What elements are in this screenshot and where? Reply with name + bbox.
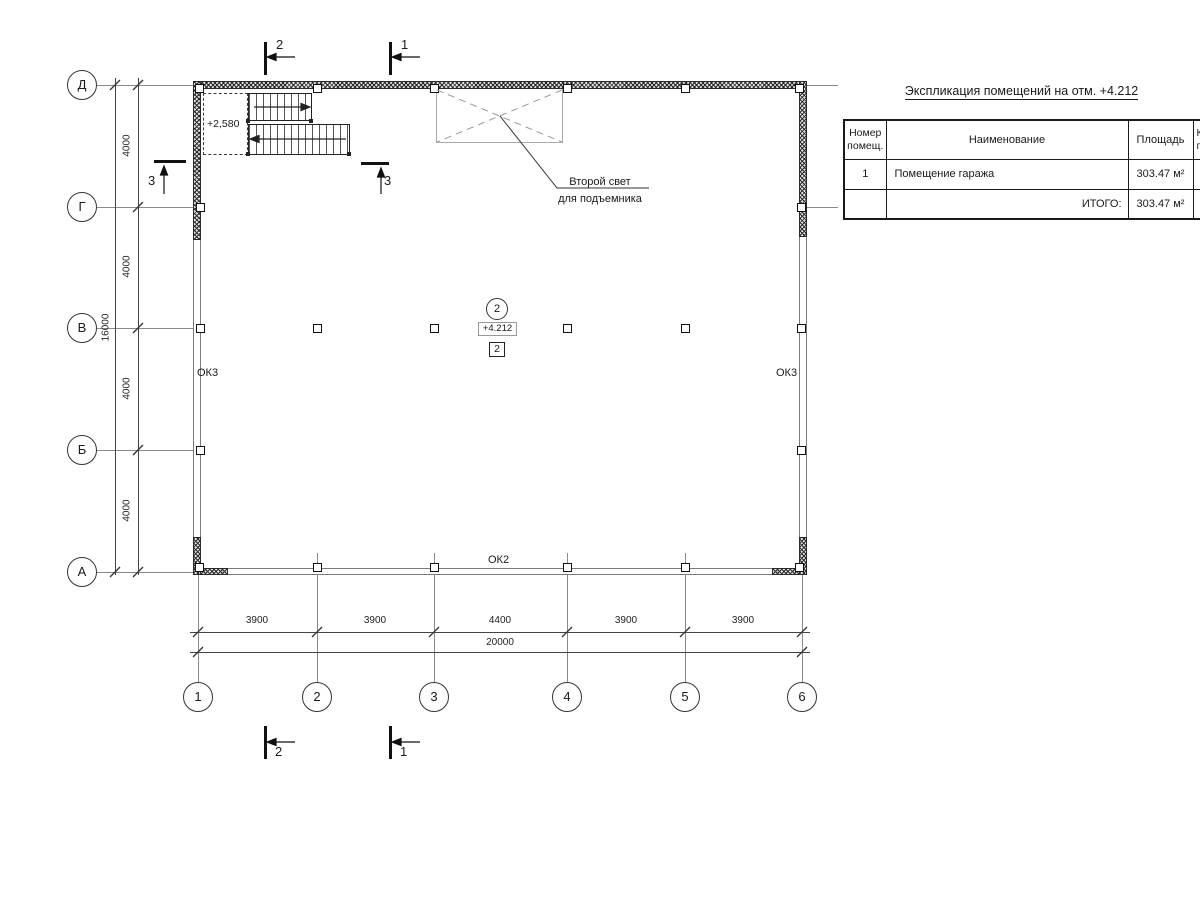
void-note-line2: для подъемника [546, 193, 654, 205]
dim-label: 4000 [122, 364, 133, 414]
floor-plan-sheet: +2,580 Д Г В Б А 1 2 3 4 5 6 4000 4000 4… [0, 0, 1200, 900]
dim-label: 3900 [227, 615, 287, 626]
schedule-header-area: Площадь [1128, 120, 1193, 159]
grid-bubble-col-6: 6 [787, 682, 817, 712]
dim-line-bottom-inner [190, 632, 810, 633]
grid-bubble-row-a: А [67, 557, 97, 587]
grid-bubble-col-2: 2 [302, 682, 332, 712]
schedule-title: Экспликация помещений на отм. +4.212 [843, 84, 1200, 98]
total-label: ИТОГО: [886, 189, 1128, 219]
dim-total-label: 16000 [101, 303, 112, 353]
wall-pilaster [313, 84, 322, 93]
section-label: 2 [275, 744, 282, 759]
stair-newel-dot [246, 119, 250, 123]
dim-total-label: 20000 [470, 637, 530, 648]
schedule-header-name: Наименование [886, 120, 1128, 159]
dim-label: 4000 [122, 242, 133, 292]
grid-stub-right-d [807, 85, 838, 86]
grid-line-row-b [97, 450, 200, 451]
window-tag-left: ОК3 [197, 367, 218, 379]
dim-line-vertical-inner [138, 78, 139, 575]
wall-pilaster [196, 324, 205, 333]
section-label: 3 [148, 173, 155, 188]
window-band-bottom [200, 568, 800, 575]
section-label: 2 [276, 37, 283, 52]
total-empty-cell [844, 189, 886, 219]
grid-bubble-col-5: 5 [670, 682, 700, 712]
wall-pilaster [195, 84, 204, 93]
schedule-row: 1 Помещение гаража 303.47 м² [844, 159, 1200, 189]
section-mark-3-left [154, 160, 186, 163]
wall-pilaster [681, 84, 690, 93]
section-mark-1-bottom [389, 726, 392, 759]
window-tag-bottom: ОК2 [488, 554, 509, 566]
section-mark-2-bottom [264, 726, 267, 759]
dim-label: 4000 [122, 486, 133, 536]
wall-pilaster [563, 84, 572, 93]
column-marker [681, 324, 690, 333]
wall-left-upper [193, 81, 201, 240]
dim-label: 4400 [470, 615, 530, 626]
wall-pilaster [195, 563, 204, 572]
position-bubble: 2 [486, 298, 508, 320]
dim-label: 3900 [345, 615, 405, 626]
elevation-box: +4.212 [478, 322, 517, 336]
stair-landing-elevation: +2,580 [207, 118, 239, 130]
window-tag-right: ОК3 [776, 367, 797, 379]
dim-label: 3900 [596, 615, 656, 626]
column-marker [313, 324, 322, 333]
wall-pilaster [196, 446, 205, 455]
dim-line-bottom-outer [190, 652, 810, 653]
window-band-right [799, 237, 807, 537]
wall-pilaster [797, 446, 806, 455]
section-mark-3-right [361, 162, 389, 165]
column-marker [563, 324, 572, 333]
wall-pilaster [797, 203, 806, 212]
wall-top [193, 81, 807, 89]
grid-bubble-col-1: 1 [183, 682, 213, 712]
room-area: 303.47 м² [1128, 159, 1193, 189]
window-band-left [193, 240, 201, 537]
total-area: 303.47 м² [1128, 189, 1193, 219]
wall-pilaster [795, 563, 804, 572]
grid-stub-right-g [807, 207, 838, 208]
grid-line-row-v [97, 328, 200, 329]
schedule-title-text: Экспликация помещений на отм. +4.212 [905, 84, 1139, 100]
room-number: 1 [844, 159, 886, 189]
wall-right-upper [799, 81, 807, 237]
dim-label: 3900 [713, 615, 773, 626]
stair-newel-dot [246, 152, 250, 156]
grid-line-row-g [97, 207, 200, 208]
section-label: 3 [384, 173, 391, 188]
grid-bubble-row-g: Г [67, 192, 97, 222]
grid-bubble-row-v: В [67, 313, 97, 343]
room-schedule-table: Номер помещ. Наименование Площадь К п 1 … [843, 119, 1200, 220]
wall-pilaster [430, 84, 439, 93]
wall-pilaster [196, 203, 205, 212]
section-mark-1-top [389, 42, 392, 75]
schedule-header-cut: К п [1193, 120, 1200, 159]
room-cut-cell [1193, 159, 1200, 189]
wall-pilaster [313, 563, 322, 572]
wall-pilaster [795, 84, 804, 93]
total-cut-cell [1193, 189, 1200, 219]
stair-flight-upper [248, 93, 312, 121]
stair-flight-lower [248, 124, 350, 155]
column-marker [430, 324, 439, 333]
grid-bubble-row-d: Д [67, 70, 97, 100]
wall-pilaster [681, 563, 690, 572]
schedule-header-number: Номер помещ. [844, 120, 886, 159]
wall-pilaster [797, 324, 806, 333]
dim-line-vertical-outer [115, 78, 116, 575]
grid-bubble-row-b: Б [67, 435, 97, 465]
section-mark-2-top [264, 42, 267, 75]
void-note-line1: Второй свет [550, 176, 650, 188]
second-light-void [436, 89, 563, 143]
wall-pilaster [430, 563, 439, 572]
stair-newel-dot [347, 152, 351, 156]
schedule-total-row: ИТОГО: 303.47 м² [844, 189, 1200, 219]
grid-bubble-col-4: 4 [552, 682, 582, 712]
grid-line-row-d [97, 85, 200, 86]
section-label: 1 [401, 37, 408, 52]
grid-line-row-a [97, 572, 200, 573]
room-name: Помещение гаража [886, 159, 1128, 189]
wall-pilaster [563, 563, 572, 572]
node-box: 2 [489, 342, 505, 357]
section-label: 1 [400, 744, 407, 759]
stair-newel-dot [309, 119, 313, 123]
dim-label: 4000 [122, 121, 133, 171]
grid-bubble-col-3: 3 [419, 682, 449, 712]
wall-corner-bottom-left [200, 568, 228, 575]
